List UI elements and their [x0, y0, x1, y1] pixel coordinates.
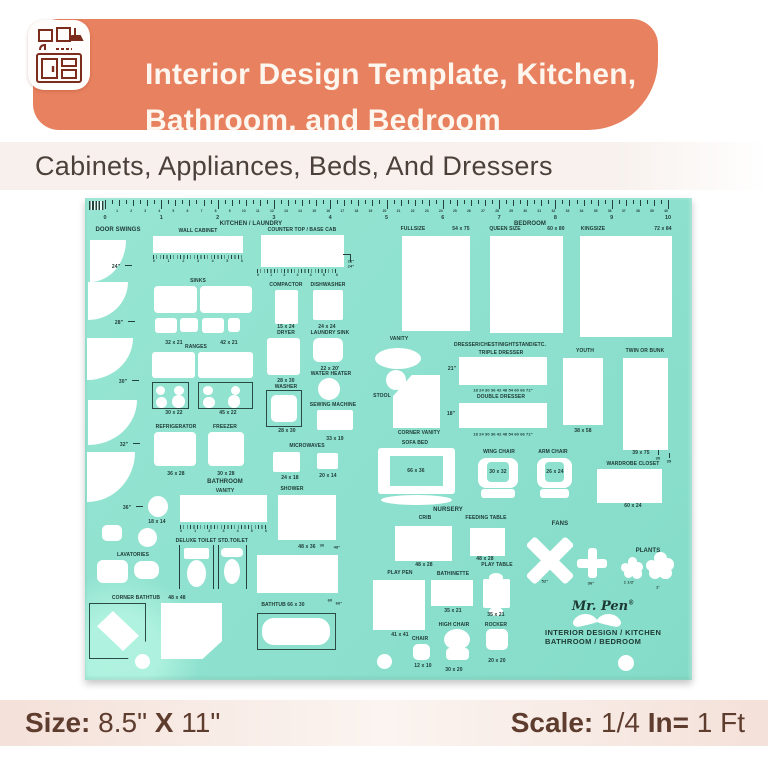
title-banner: Interior Design Template, Kitchen, Bathr… [33, 19, 658, 130]
ruler-tick [344, 200, 345, 206]
mustache-icon [571, 613, 623, 629]
registration-hole [135, 654, 150, 669]
stencil-label: 30 x 28 [217, 471, 234, 477]
shower-cutout [278, 495, 336, 540]
scale-in: In= [648, 707, 689, 738]
deluxe-toilet-tank [184, 548, 209, 559]
ruler-tick [323, 200, 324, 204]
laundry-sink-cutout [313, 338, 343, 362]
crib-cutout [395, 526, 452, 561]
mini-ruler-number: 5 [251, 529, 253, 533]
stencil-label: 54 x 75 [452, 226, 469, 232]
ruler-tick [133, 200, 134, 206]
range-cutout [198, 352, 253, 378]
ruler-tick [330, 200, 331, 209]
ruler-inch-number: 20 [383, 209, 387, 213]
stencil-label: 30" [119, 379, 127, 385]
door-swing-36 [87, 452, 135, 502]
stencil-label: PLAY TABLE [481, 562, 512, 568]
stencil-label: PLAY PEN [387, 570, 412, 576]
stencil-label: 60 x 24 [624, 503, 641, 509]
stencil-label: 33 x 19 [326, 436, 343, 442]
sink-cutout [154, 286, 197, 313]
stencil-label: BATHINETTE [437, 571, 469, 577]
ruler-tick [640, 200, 641, 206]
stencil-label: 30 x 32 [489, 469, 506, 475]
stencil-label: 2' [656, 585, 659, 590]
ruler-tick [260, 200, 261, 206]
toilet-guide [218, 545, 219, 589]
ruler-tick [478, 200, 479, 204]
mini-ruler-number: 0 [153, 259, 155, 263]
ruler-inch-number: 4 [158, 209, 160, 213]
stencil-label: 36 [320, 543, 325, 548]
stencil-label: 35 x 21 [487, 612, 504, 618]
ruler-inch-number: 26 [467, 209, 471, 213]
size-label: Size: [25, 707, 90, 738]
ruler-tick [232, 200, 233, 206]
ruler-inch-number: 22 [411, 209, 415, 213]
mini-ruler-number: 4 [237, 529, 239, 533]
stencil-label: PLANTS [636, 548, 661, 554]
ruler-foot-number: 2 [216, 215, 219, 221]
burner [203, 386, 212, 395]
stencil-label: 66" [336, 601, 343, 606]
ruler-tick [429, 200, 430, 206]
mini-ruler: 0123456 [153, 255, 243, 263]
ruler-tick [633, 200, 634, 204]
stencil-label: HIGH CHAIR [439, 622, 470, 628]
ruler-tick [534, 200, 535, 204]
ruler-tick [647, 200, 648, 204]
ruler-foot-number: 6 [441, 215, 444, 221]
ruler-tick [126, 200, 127, 204]
ruler-tick [154, 200, 155, 204]
ruler-tick [218, 200, 219, 209]
registered-mark: ® [628, 600, 634, 607]
stencil-label: 36" [123, 505, 131, 511]
mini-ruler-number: 4 [212, 259, 214, 263]
ruler-inch-number: 28 [495, 209, 499, 213]
stencil-label: COMPACTOR [269, 282, 302, 288]
stencil-label: SHOWER [280, 486, 303, 492]
door-swing-30 [87, 338, 133, 380]
stencil-label: CORNER VANITY [398, 430, 440, 436]
ruler-foot-number: 4 [329, 215, 332, 221]
ruler-foot-number: 1 [160, 215, 163, 221]
stencil-label: DRESSER/CHEST/NIGHTSTAND/ETC. [454, 342, 546, 348]
mini-ruler-number: 1 [270, 273, 272, 277]
plant-cutout [621, 557, 643, 579]
bath-vanity-cutout [180, 495, 267, 522]
microwave-cutout [317, 453, 338, 469]
stencil-label: MICROWAVES [289, 443, 324, 449]
ruler-tick [577, 200, 578, 204]
dim-tick [133, 443, 140, 444]
toilet-guide [246, 545, 247, 589]
mini-ruler-number: 2 [283, 273, 285, 277]
ruler-inch-number: 35 [594, 209, 598, 213]
twin-bed-cutout [623, 358, 668, 450]
stencil-label: 36 x 28 [167, 471, 184, 477]
stencil-label: 30 x 22 [165, 410, 182, 416]
ruler-inch-number: 18 [354, 209, 358, 213]
range-burners [198, 382, 253, 409]
stencil-label: 26 x 24 [546, 469, 563, 475]
chair-cutout [413, 644, 430, 660]
ruler-inch-number: 10 [242, 209, 246, 213]
stencil-label: 39 x 75 [632, 450, 649, 456]
stencil-label: 45 x 22 [219, 410, 236, 416]
ruler-foot-number: 7 [498, 215, 501, 221]
ruler-hatch [89, 201, 104, 210]
bed-full-cutout [402, 236, 470, 331]
high-chair-cutout [444, 629, 470, 650]
ruler-tick [668, 200, 669, 209]
ruler-inch-number: 12 [270, 209, 274, 213]
ruler-tick [492, 200, 493, 204]
play-pen-cutout [373, 580, 425, 630]
ruler-tick [281, 200, 282, 204]
stencil-label: WALL CABINET [179, 228, 218, 234]
freezer-cutout [208, 432, 244, 466]
scale-label: Scale: [511, 707, 594, 738]
mini-ruler-number: 0 [180, 529, 182, 533]
stencil-label: SOFA BED [402, 440, 428, 446]
ruler-inch-number: 3 [144, 209, 146, 213]
ruler-inch-number: 21 [397, 209, 401, 213]
burner [172, 395, 184, 407]
stencil-label: STOOL [373, 393, 391, 399]
mini-ruler-number: 0 [257, 273, 259, 277]
ruler-tick [506, 200, 507, 204]
ruler-inch-number: 30 [523, 209, 527, 213]
dishwasher-cutout [313, 290, 343, 320]
stencil-label: BATHTUB 66 x 30 [261, 602, 304, 608]
ruler-tick [112, 200, 113, 204]
door-swing-24 [90, 240, 126, 282]
ruler-tick [569, 200, 570, 206]
compactor-cutout [275, 290, 298, 324]
stencil-label: COUNTER TOP / BASE CAB [268, 227, 337, 233]
stencil-label: ROCKER [485, 622, 507, 628]
mini-ruler-number: 5 [323, 273, 325, 277]
ruler-tick [316, 200, 317, 206]
ruler-tick [168, 200, 169, 204]
ruler-inch-number: 38 [636, 209, 640, 213]
ruler-tick [189, 200, 190, 206]
ruler-tick [274, 200, 275, 209]
ruler-tick [457, 200, 458, 206]
ruler-tick [267, 200, 268, 204]
stencil-label: 32" [120, 442, 128, 448]
dim-tick [128, 321, 135, 322]
dim-tick [125, 265, 132, 266]
stencil-label: WASHER [275, 384, 298, 390]
ruler-tick [302, 200, 303, 206]
ruler-inch-number: 17 [340, 209, 344, 213]
stencil-label: NURSERY [433, 507, 463, 513]
burner [231, 386, 240, 395]
ruler-inch-number: 23 [425, 209, 429, 213]
bed-60-66-cutout [257, 555, 338, 593]
lavatory-cutout [134, 561, 159, 579]
stencil-board: Mr. Pen® INTERIOR DESIGN / KITCHEN BATHR… [85, 198, 692, 680]
stencil-label: 18 x 14 [148, 519, 165, 525]
stencil-label: BATHROOM [207, 479, 243, 485]
kitchen-cabinet-icon [28, 20, 90, 90]
mini-ruler-number: 3 [197, 259, 199, 263]
stencil-label: DRYER [277, 330, 295, 336]
tub-48x48-cutout [161, 603, 222, 659]
ruler-tick [161, 200, 162, 209]
ruler-inch-number: 16 [326, 209, 330, 213]
burner [174, 386, 183, 395]
ruler-tick [253, 200, 254, 204]
ruler-tick [147, 200, 148, 206]
ruler-inch-number: 5 [172, 209, 174, 213]
stencil-label: 20 x 14 [319, 473, 336, 479]
ruler-tick [105, 200, 106, 209]
deluxe-toilet-bowl [187, 560, 206, 587]
mini-ruler-number: 6 [241, 259, 243, 263]
mini-ruler-number: 3 [296, 273, 298, 277]
play-table-cutout [483, 579, 510, 608]
ruler-tick [562, 200, 563, 204]
ruler-tick [211, 200, 212, 204]
registration-hole [377, 654, 392, 669]
ruler-tick [288, 200, 289, 206]
stencil-label: REFRIGERATOR [156, 424, 197, 430]
stencil-label: WATER HEATER [311, 371, 351, 377]
ruler-inch-number: 14 [298, 209, 302, 213]
stencil-label: 42 x 21 [220, 340, 237, 346]
ruler-tick [619, 200, 620, 204]
ruler-inch-number: 13 [284, 209, 288, 213]
ruler-tick [471, 200, 472, 206]
ruler-tick [541, 200, 542, 206]
stencil-label: 48 x 48 [168, 595, 185, 601]
plant-cutout [646, 552, 674, 580]
ruler-tick [436, 200, 437, 204]
mini-ruler: 0123456 [180, 525, 267, 533]
range-cutout [152, 352, 195, 378]
stencil-label: DOUBLE DRESSER [477, 394, 525, 400]
ruler-tick [548, 200, 549, 204]
stencil-label: RANGES [185, 344, 207, 350]
stencil-label: STD.TOILET [218, 538, 248, 544]
mini-ruler-number: 5 [226, 259, 228, 263]
ruler-tick [351, 200, 352, 204]
subtitle-text: Cabinets, Appliances, Beds, And Dressers [35, 151, 553, 182]
ruler-inch-number: 29 [509, 209, 513, 213]
banner-title-line1: Interior Design Template, Kitchen, [145, 52, 636, 98]
ruler-tick [520, 200, 521, 204]
stencil-label: DELUXE TOILET [176, 538, 217, 544]
ruler-tick [387, 200, 388, 209]
ruler-inch-number: 31 [537, 209, 541, 213]
stencil-label: QUEEN SIZE [489, 226, 520, 232]
stencil-label: FANS [552, 521, 568, 527]
ruler-inch-number: 15 [312, 209, 316, 213]
dryer-cutout [267, 338, 300, 375]
washer-cutout [271, 395, 297, 422]
ruler-foot-number: 0 [103, 215, 106, 221]
dim-tick [658, 450, 659, 455]
toilet-guide [179, 545, 180, 589]
mini-ruler-numbers: 0123456 [180, 529, 267, 533]
stencil-label: 1 1/2' [624, 580, 634, 585]
bathinette-cutout [431, 580, 473, 606]
ruler-tick [196, 200, 197, 204]
ruler-foot-number: 10 [665, 215, 671, 221]
scale-text: Scale: 1/4 In= 1 Ft [511, 707, 745, 739]
dim-tick [132, 380, 139, 381]
stencil-label: KINGSIZE [581, 226, 605, 232]
stencil-label: 18" [447, 411, 455, 417]
stencil-label: 12 x 10 [414, 663, 431, 669]
stencil-label: 38 x 58 [574, 428, 591, 434]
ruler-tick [443, 200, 444, 209]
ruler-tick [175, 200, 176, 206]
ruler-tick [612, 200, 613, 209]
microwave-cutout [273, 452, 300, 472]
ruler-tick [119, 200, 120, 206]
ruler-tick [372, 200, 373, 206]
burner [156, 386, 165, 395]
registration-hole [618, 655, 634, 671]
ruler-tick [379, 200, 380, 204]
mini-ruler-number: 1 [194, 529, 196, 533]
stencil-label: 24" [348, 264, 355, 269]
ruler-tick [464, 200, 465, 204]
mini-ruler-number: 3 [222, 529, 224, 533]
ruler-tick [295, 200, 296, 204]
brand-line2: BATHROOM / BEDROOM [545, 637, 641, 646]
burner [156, 397, 167, 408]
ruler-inch-number: 25 [453, 209, 457, 213]
stencil-label: DISHWASHER [311, 282, 346, 288]
ceiling-fan-plus [588, 548, 597, 578]
ruler-inch-number: 24 [439, 209, 443, 213]
rocker-cutout [486, 629, 508, 650]
ruler-tick [626, 200, 627, 206]
counter-top-cutout [261, 235, 344, 267]
mini-ruler-number: 4 [310, 273, 312, 277]
stencil-label: 72 x 84 [654, 226, 671, 232]
high-chair-base [446, 648, 469, 660]
ruler-tick [225, 200, 226, 204]
refrigerator-cutout [154, 432, 196, 466]
ruler-inch-number: 19 [369, 209, 373, 213]
ruler-foot-number: 8 [554, 215, 557, 221]
burner [228, 395, 240, 407]
std-toilet-tank [221, 548, 243, 557]
ruler-tick [246, 200, 247, 206]
ruler-inch-number: 40 [664, 209, 668, 213]
stencil-label: 60 x 80 [547, 226, 564, 232]
stencil-label: 21" [448, 366, 456, 372]
ruler-inch-number: 39 [650, 209, 654, 213]
stencil-label: 35 x 21 [444, 608, 461, 614]
stencil-label: WARDROBE CLOSET [607, 461, 660, 467]
stencil-label: 18 24 30 36 42 48 54 60 66 72" [473, 388, 532, 393]
ruler-inch-number: 36 [608, 209, 612, 213]
stencil-label: LAUNDRY SINK [311, 330, 350, 336]
ruler-tick [661, 200, 662, 204]
lavatory-cutout [138, 528, 157, 547]
bathtub-cutout [262, 618, 330, 645]
wing-chair-ottoman [481, 489, 515, 498]
scale-value-2: 1 Ft [697, 707, 745, 738]
stencil-label: 24" [112, 264, 120, 270]
ruler-inch-number: 8 [215, 209, 217, 213]
brand-line1: INTERIOR DESIGN / KITCHEN [545, 628, 661, 637]
ruler-inch-number: 37 [622, 209, 626, 213]
kitchen-cabinet-icon-art [28, 20, 90, 90]
lavatory-cutout [102, 525, 122, 541]
size-x: X [155, 707, 174, 738]
sink-cutout [228, 318, 240, 332]
mini-ruler: 0123456 [257, 269, 338, 277]
stencil-label: FREEZER [213, 424, 237, 430]
youth-bed-cutout [563, 358, 603, 425]
ruler-inch-number: 6 [186, 209, 188, 213]
mini-ruler-numbers: 0123456 [257, 273, 338, 277]
footer-bar: Size: 8.5" X 11" Scale: 1/4 In= 1 Ft [0, 700, 768, 746]
door-swing-32 [88, 400, 137, 445]
stencil-label: ARM CHAIR [538, 449, 568, 455]
ruler-inch-number: 27 [481, 209, 485, 213]
sofa-bed-skirt [381, 495, 452, 505]
stencil-label: 48 x 36 [298, 544, 315, 550]
dim-tick [669, 453, 670, 458]
ruler-tick [654, 200, 655, 206]
ruler-inch-number: 7 [201, 209, 203, 213]
vanity-kidney-cutout [375, 348, 421, 369]
ruler-tick [182, 200, 183, 204]
size-value-1: 8.5" [98, 707, 147, 738]
ruler-tick [239, 200, 240, 204]
ruler-tick [358, 200, 359, 206]
stencil-label: 24 x 18 [281, 475, 298, 481]
ruler-tick [513, 200, 514, 206]
mini-ruler-number: 2 [182, 259, 184, 263]
ruler-foot-number: 9 [610, 215, 613, 221]
ruler-tick [401, 200, 402, 206]
door-swing-28 [88, 282, 128, 320]
subtitle-strip: Cabinets, Appliances, Beds, And Dressers [0, 142, 768, 190]
plant-lobe [653, 559, 668, 574]
ruler-tick [605, 200, 606, 204]
wall-cabinet-cutout [153, 236, 243, 253]
stencil-label: DOOR SWINGS [95, 227, 140, 233]
mini-ruler-number: 1 [168, 259, 170, 263]
burner [203, 397, 214, 408]
stencil-label: 41 x 41 [391, 632, 408, 638]
ruler-tick [527, 200, 528, 206]
feeding-table-cutout [470, 528, 505, 556]
stencil-label: 48 x 28 [415, 562, 432, 568]
stencil-label: CRIB [419, 515, 432, 521]
stencil-label: CHAIR [412, 636, 428, 642]
stencil-label: SEWING MACHINE [310, 402, 356, 408]
stencil-label: 20 x 20 [488, 658, 505, 664]
ruler-tick [450, 200, 451, 204]
ruler-foot-number: 3 [272, 215, 275, 221]
lavatory-cutout [148, 496, 168, 517]
stencil-label: SINKS [190, 278, 206, 284]
